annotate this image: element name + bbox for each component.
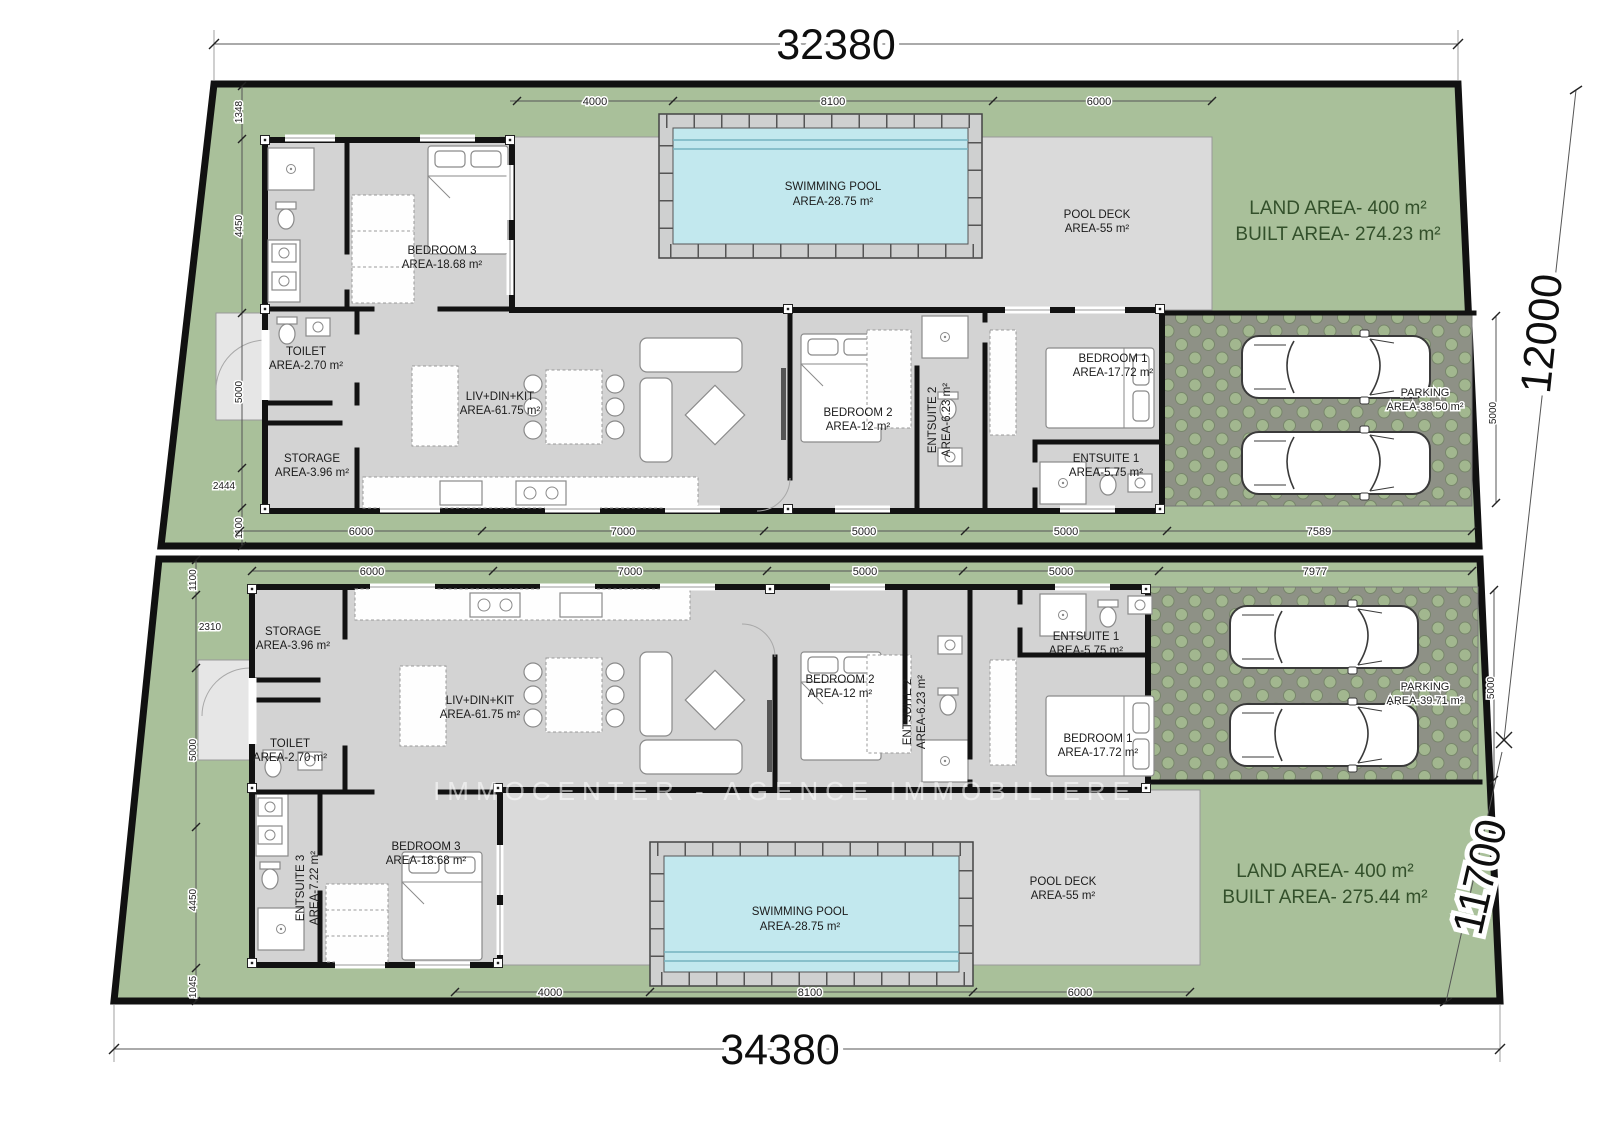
label-bedroom2-a-area: AREA-12 m² — [826, 421, 891, 433]
dim-bottom-width: 34380 — [720, 1026, 840, 1074]
label-entsuite1-b: ENTSUITE 1 — [1053, 631, 1119, 643]
label-parking-a: PARKING — [1401, 387, 1450, 399]
label-livdinkit-a-area: AREA-61.75 m² — [460, 405, 541, 417]
svg-text:7589: 7589 — [1307, 526, 1331, 538]
label-bedroom3-a-area: AREA-18.68 m² — [402, 259, 483, 271]
svg-text:6000: 6000 — [360, 566, 384, 578]
svg-text:5000: 5000 — [852, 526, 876, 538]
svg-text:4450: 4450 — [188, 888, 199, 911]
svg-text:5000: 5000 — [1486, 676, 1497, 699]
svg-text:7000: 7000 — [618, 566, 642, 578]
label-bedroom1-a-area: AREA-17.72 m² — [1073, 367, 1154, 379]
label-storage-a-area: AREA-3.96 m² — [275, 467, 349, 479]
svg-text:5000: 5000 — [1049, 566, 1073, 578]
svg-text:6000: 6000 — [1087, 96, 1111, 108]
svg-text:6000: 6000 — [1068, 987, 1092, 999]
svg-text:5000: 5000 — [234, 380, 245, 403]
svg-text:7977: 7977 — [1303, 566, 1327, 578]
svg-text:4000: 4000 — [538, 987, 562, 999]
dim-height-a: 12000 — [1512, 272, 1572, 396]
label-pool-b: SWIMMING POOL — [752, 906, 849, 918]
label-livdinkit-a: LIV+DIN+KIT — [466, 391, 534, 403]
label-bedroom3-b-area: AREA-18.68 m² — [386, 855, 467, 867]
label-bedroom3-b: BEDROOM 3 — [391, 841, 460, 853]
svg-text:5000: 5000 — [1488, 401, 1499, 424]
label-entsuite2-b: ENTSUITE 2 — [902, 679, 914, 745]
label-parking-a-area: AREA-38.50 m² — [1386, 401, 1463, 413]
site-a: BEDROOM 3 AREA-18.68 m² TOILET AREA-2.70… — [161, 84, 1479, 546]
floor-plan-canvas: BEDROOM 3 AREA-18.68 m² TOILET AREA-2.70… — [0, 0, 1600, 1130]
label-bedroom1-a: BEDROOM 1 — [1078, 353, 1147, 365]
site-plan-drawing: BEDROOM 3 AREA-18.68 m² TOILET AREA-2.70… — [0, 0, 1600, 1130]
dim-top-width: 32380 — [776, 21, 896, 69]
svg-text:1100: 1100 — [188, 569, 199, 591]
svg-text:4000: 4000 — [583, 96, 607, 108]
label-entsuite3-b-area: AREA-7.22 m² — [309, 851, 321, 925]
label-parking-b: PARKING — [1401, 681, 1450, 693]
label-built-area-b: BUILT AREA- 275.44 m² — [1222, 887, 1427, 908]
svg-text:5000: 5000 — [1054, 526, 1078, 538]
label-entsuite2-b-area: AREA-6.23 m² — [916, 675, 928, 749]
label-entsuite1-a-area: AREA-5.75 m² — [1069, 467, 1143, 479]
label-livdinkit-b-area: AREA-61.75 m² — [440, 709, 521, 721]
label-bedroom1-b-area: AREA-17.72 m² — [1058, 747, 1139, 759]
label-livdinkit-b: LIV+DIN+KIT — [446, 695, 514, 707]
label-toilet-b: TOILET — [270, 738, 310, 750]
label-pool-b-area: AREA-28.75 m² — [760, 921, 841, 933]
label-bedroom2-b: BEDROOM 2 — [805, 674, 874, 686]
label-bedroom2-b-area: AREA-12 m² — [808, 688, 873, 700]
label-pool-a-area: AREA-28.75 m² — [793, 196, 874, 208]
label-storage-b-area: AREA-3.96 m² — [256, 640, 330, 652]
svg-text:2310: 2310 — [199, 622, 222, 633]
watermark-text: IMMOCENTER - AGENCE IMMOBILIERE — [433, 776, 1137, 806]
svg-text:7000: 7000 — [611, 526, 635, 538]
label-toilet-b-area: AREA-2.70 m² — [253, 752, 327, 764]
label-pooldeck-a: POOL DECK — [1064, 209, 1131, 221]
label-built-area-a: BUILT AREA- 274.23 m² — [1235, 224, 1440, 245]
svg-text:8100: 8100 — [798, 987, 822, 999]
label-bedroom2-a: BEDROOM 2 — [823, 407, 892, 419]
label-storage-a: STORAGE — [284, 453, 340, 465]
label-entsuite3-b: ENTSUITE 3 — [295, 855, 307, 921]
label-bedroom3-a: BEDROOM 3 — [407, 245, 476, 257]
svg-text:5000: 5000 — [853, 566, 877, 578]
label-entsuite1-b-area: AREA-5.75 m² — [1049, 645, 1123, 657]
label-pooldeck-b: POOL DECK — [1030, 876, 1097, 888]
label-parking-b-area: AREA-39.71 m² — [1386, 695, 1463, 707]
label-storage-b: STORAGE — [265, 626, 321, 638]
label-pooldeck-a-area: AREA-55 m² — [1065, 223, 1130, 235]
label-entsuite2-a-area: AREA-6.23 m² — [941, 383, 953, 457]
svg-text:5000: 5000 — [188, 738, 199, 761]
label-land-area-a: LAND AREA- 400 m² — [1249, 198, 1426, 219]
label-entsuite2-a: ENTSUITE 2 — [927, 387, 939, 453]
label-entsuite1-a: ENTSUITE 1 — [1073, 453, 1139, 465]
svg-text:1348: 1348 — [234, 100, 245, 123]
label-toilet-a: TOILET — [286, 346, 326, 358]
svg-text:8100: 8100 — [821, 96, 845, 108]
label-pool-a: SWIMMING POOL — [785, 181, 882, 193]
label-land-area-b: LAND AREA- 400 m² — [1236, 861, 1413, 882]
svg-text:4450: 4450 — [234, 214, 245, 237]
svg-text:2444: 2444 — [213, 481, 236, 492]
svg-text:6000: 6000 — [349, 526, 373, 538]
svg-text:1045: 1045 — [188, 975, 199, 998]
label-pooldeck-b-area: AREA-55 m² — [1031, 890, 1096, 902]
label-toilet-a-area: AREA-2.70 m² — [269, 360, 343, 372]
label-bedroom1-b: BEDROOM 1 — [1063, 733, 1132, 745]
